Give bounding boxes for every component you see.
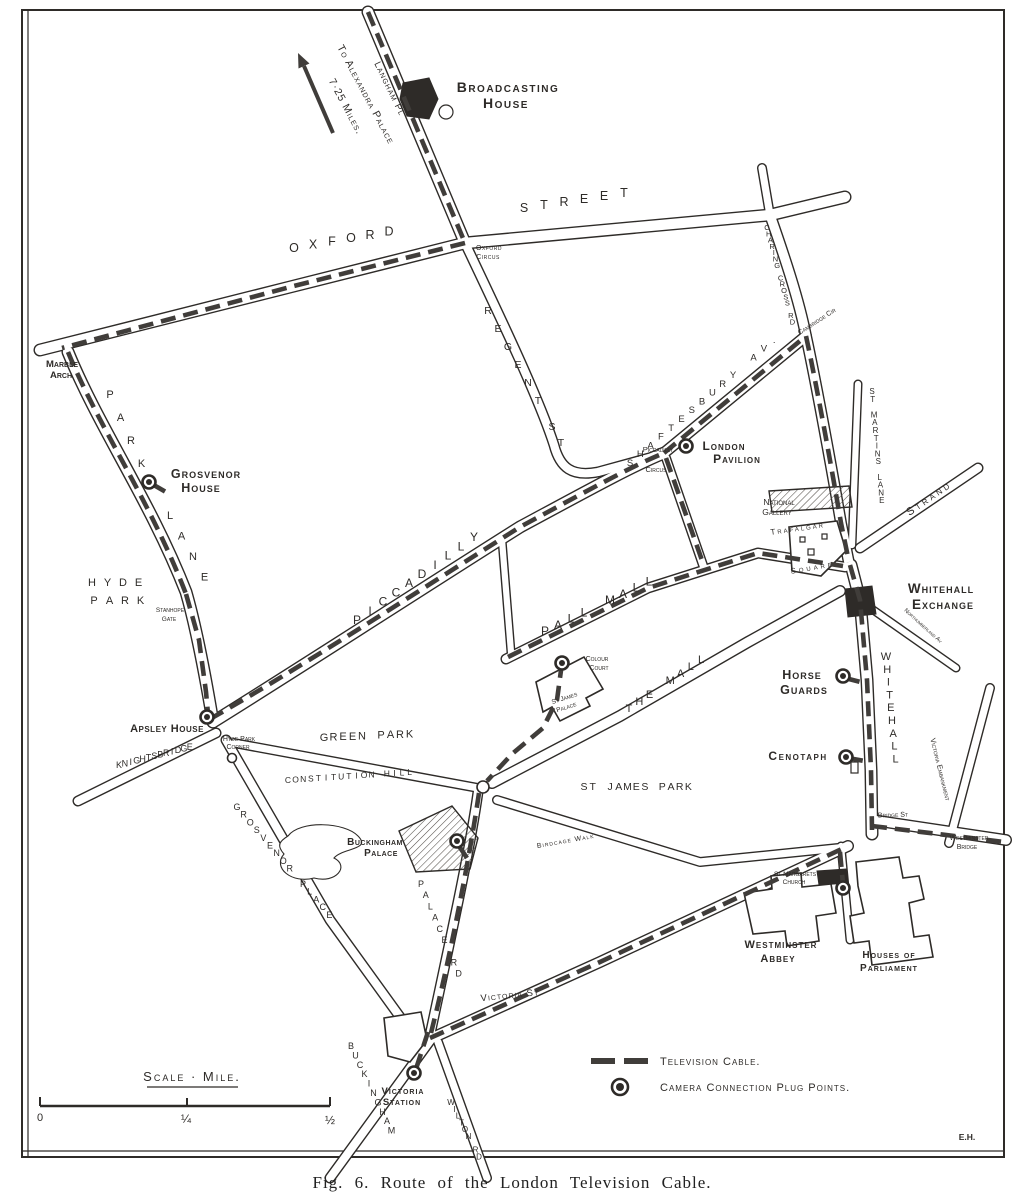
map-label-piccadilly-circus-2: Circus [646, 465, 668, 474]
map-label-st-margarets-1: St Margarets [774, 871, 817, 878]
map-label-oxford-street-street: T [620, 186, 628, 200]
map-label-stanhope-gate-2: Gate [162, 616, 177, 623]
map-label-regent-st-st: S [548, 421, 555, 433]
map-label-hyde-park-hyde: Y [104, 577, 112, 589]
legend-plug-sample-dot [616, 1083, 624, 1091]
map-label-palace-rd: A [423, 890, 429, 900]
map-label-green-park: G [320, 732, 329, 744]
map-label-grosvenor-place: O [247, 817, 254, 827]
map-label-regent-st-regent: T [535, 395, 542, 407]
map-label-charing-cross-rd: G [774, 261, 780, 270]
map-label-park-lane-park: P [106, 389, 113, 401]
map-label-piccadilly-street: L [458, 539, 465, 553]
map-label-shaftesbury-av: B [699, 396, 705, 407]
map-label-oxford-street-street: E [600, 189, 608, 203]
street [226, 740, 408, 1028]
map-label-oxford-street-street: E [580, 192, 588, 206]
map-label-palace-rd: E [441, 935, 447, 945]
map-label-the-mall: M [666, 675, 675, 687]
map-label-strand: Strand [904, 478, 954, 518]
map-label-st-james-park: E [633, 781, 640, 793]
map-label-st-james-park: K [685, 781, 692, 793]
map-label-park-lane-park: A [117, 412, 125, 424]
map-label-park-lane-lane: A [178, 531, 186, 543]
map-label-constitution-hill: S [308, 774, 314, 784]
map-label-charing-cross-rd: S [785, 299, 790, 308]
map-label-whitehall-street: A [890, 728, 898, 740]
map-label-st-james-park: T [589, 781, 596, 793]
scale-bar: Scale · Mile. 0 ¼ ½ [37, 1069, 335, 1127]
map-label-knightsbridge: I [130, 757, 133, 767]
map-label-constitution-hill: O [292, 775, 299, 785]
map-label-knightsbridge: I [171, 747, 174, 757]
map-label-stanhope-gate-1: Stanhope [156, 607, 185, 614]
map-label-oxford-street-oxford: F [328, 234, 336, 248]
map-label-hyde-park-corner-1: Hyde Park [223, 736, 256, 743]
map-label-st-james-park: J [607, 781, 612, 793]
map-label-piccadilly-street: I [433, 558, 436, 572]
map-label-st-margarets-2: Church [783, 879, 806, 886]
victoria-station-plug [408, 1067, 421, 1080]
map-label-marble-arch-2: Arch [50, 370, 72, 381]
map-label-st-martins-lane: E [879, 496, 884, 505]
map-label-green-park: E [349, 731, 356, 743]
map-label-buckingham-palace-2: Palace [364, 848, 398, 859]
map-label-grosvenor-place: A [313, 894, 319, 904]
map-label-houses-parliament-2: Parliament [860, 963, 918, 974]
map-label-shaftesbury-av: F [658, 432, 664, 443]
map-label-hyde-park-park: A [106, 595, 114, 607]
map-label-victoria-embankment: Victoria Embankment [928, 737, 952, 802]
map-label-oxford-street-oxford: O [346, 231, 356, 245]
scale-tick-half: ½ [325, 1113, 335, 1127]
map-label-green-park: A [387, 729, 395, 741]
st-margarets-plug [837, 882, 850, 895]
map-label-park-lane-park: R [127, 435, 135, 447]
map-label-westminster-bridge-1: Westminster [950, 835, 989, 842]
map-label-constitution-hill: T [331, 772, 336, 782]
map-label-westminster-bridge-2: Bridge [957, 844, 978, 851]
map-label-whitehall-street: L [891, 741, 897, 753]
colour-court-plug [556, 657, 569, 670]
map-label-the-mall: E [646, 689, 653, 701]
map-label-st-james-park: R [676, 781, 684, 793]
map-label-whitehall-street: L [893, 753, 899, 765]
buckingham-palace-plug [451, 835, 464, 848]
map-label-pall-mall: P [541, 624, 549, 638]
map-label-constitution-hill: L [400, 768, 405, 778]
horse-guards-plug [837, 670, 850, 683]
map-label-palace-rd: C [437, 924, 444, 934]
map-label-green-park: E [339, 731, 346, 743]
scale-tick-zero: 0 [37, 1112, 43, 1124]
map-label-st-james-park: S [580, 781, 587, 793]
map-label-knightsbridge: R [163, 748, 170, 758]
map-label-pall-mall: L [568, 612, 575, 626]
map-label-whitehall-exchange-2: Exchange [912, 597, 974, 612]
figure-page: To Alexandra Palace7·25 Miles.Langham Pl… [0, 0, 1024, 1204]
map-label-shaftesbury-av: S [627, 458, 633, 469]
map-label-broadcasting-house-1: Broadcasting [457, 79, 560, 95]
map-label-the-mall: T [626, 703, 633, 715]
map-label-shaftesbury-av: Y [730, 370, 737, 381]
map-label-shaftesbury-av: V [761, 344, 768, 355]
map-label-green-park: N [358, 730, 366, 742]
map-label-st-james-park: A [615, 781, 622, 793]
map-label-buckingham-palace-rd: K [361, 1069, 367, 1079]
map-label-grosvenor-house-1: Grosvenor [171, 467, 241, 481]
map-label-green-park: K [406, 728, 414, 740]
map-label-pall-mall: L [581, 605, 588, 619]
map-label-st-martins-lane: S [876, 457, 881, 466]
figure-caption: Fig. 6. Route of the London Television C… [312, 1173, 711, 1192]
map-label-park-lane-park: K [138, 458, 146, 470]
map-label-horse-guards-1: Horse [782, 668, 822, 682]
map-label-whitehall-exchange-1: Whitehall [908, 581, 974, 596]
map-label-london-pavilion-2: Pavilion [713, 452, 761, 466]
apsley-house-plug [201, 711, 214, 724]
map-label-apsley-house: Apsley House [130, 723, 204, 735]
map-label-hyde-park-hyde: H [88, 577, 96, 589]
legend-cable-label: Television Cable. [660, 1056, 760, 1068]
map-label-shaftesbury-av: S [689, 405, 695, 416]
map-label-st-james-park: M [623, 781, 632, 793]
map-label-constitution-hill: C [285, 775, 291, 785]
map-label-whitehall-street: H [883, 664, 891, 676]
street [234, 743, 478, 788]
map-label-whitehall-street: E [887, 702, 894, 714]
map-label-regent-st-regent: G [504, 341, 512, 353]
map-label-constitution-hill: N [300, 774, 306, 784]
map-label-constitution-hill: I [393, 768, 395, 778]
map-label-green-park: R [330, 732, 338, 744]
map-label-palace-rd: D [455, 969, 462, 979]
map-label-grosvenor-place: L [307, 887, 312, 897]
scale-tick-quarter: ¼ [181, 1112, 192, 1126]
street [78, 733, 216, 801]
map-label-palace-rd: R [451, 957, 458, 967]
map-label-piccadilly-street: C [392, 585, 401, 599]
map-label-piccadilly-street: C [379, 595, 388, 609]
map-label-pall-mall: A [619, 587, 627, 601]
grosvenor-house-plug [143, 476, 156, 489]
map-label-oxford-street-street: S [520, 201, 528, 215]
map-label-cenotaph: Cenotaph [768, 749, 827, 763]
map-label-grosvenor-house-2: House [181, 481, 221, 495]
street [762, 168, 770, 215]
map-label-palace-rd: L [428, 901, 433, 911]
map-label-piccadilly-street: A [405, 576, 413, 590]
map-label-horse-guards-2: Guards [780, 683, 828, 697]
map-label-westminster-abbey-2: Abbey [760, 953, 795, 965]
map-label-the-mall: L [688, 661, 694, 673]
map-label-houses-parliament-1: Houses of [862, 950, 915, 961]
map-label-shaftesbury-av: U [709, 388, 716, 399]
houses-of-parliament-building [850, 857, 933, 965]
map-legend: Television Cable. Camera Connection Plug… [591, 1056, 850, 1095]
map-label-broadcasting-house-2: House [483, 95, 529, 111]
map-label-victoria-station-1: Victoria [382, 1086, 425, 1097]
map-label-piccadilly-street: I [368, 604, 371, 618]
map-label-whitehall-street: T [886, 689, 893, 701]
map-label-buckingham-palace-rd: M [388, 1126, 396, 1136]
victoria-memorial [477, 781, 489, 793]
map-label-oxford-circus-1: Oxford [476, 245, 502, 252]
map-label-grosvenor-place: R [287, 864, 294, 874]
map-label-piccadilly-street: D [418, 567, 427, 581]
map-label-knightsbridge: N [122, 759, 129, 769]
alexandra-palace-arrow [298, 53, 333, 133]
map-label-park-lane-lane: L [167, 510, 173, 522]
map-label-grosvenor-place: E [326, 910, 332, 920]
map-label-shaftesbury-av: . [773, 335, 776, 346]
map-label-wilton-rd: N [466, 1132, 472, 1141]
map-label-knightsbridge: E [187, 742, 193, 752]
map-label-st-james-park: P [659, 781, 666, 793]
map-label-national-gallery-1: National [763, 497, 795, 507]
cenotaph-plug [840, 751, 853, 764]
map-label-constitution-hill: L [407, 767, 412, 777]
london-pavilion-plug [680, 440, 693, 453]
map-label-buckingham-palace-1: Buckingham [347, 837, 403, 848]
street [497, 800, 848, 862]
map-label-whitehall-street: W [881, 651, 892, 663]
map-label-constitution-hill: I [325, 773, 327, 783]
map-label-constitution-hill: N [369, 770, 375, 780]
map-label-grosvenor-place: P [300, 879, 306, 889]
map-label-piccadilly-street: L [445, 549, 452, 563]
map-label-st-james-park: A [667, 781, 674, 793]
map-label-piccadilly-circus-1: Piccadilly [643, 445, 674, 454]
map-label-st-james-park: S [641, 781, 648, 793]
map-label-hyde-park-hyde: E [135, 577, 142, 589]
map-label-london-pavilion-1: London [702, 439, 745, 453]
map-label-whitehall-street: I [887, 677, 890, 689]
map-label-hyde-park-hyde: D [119, 577, 127, 589]
map-label-victoria-station-2: Station [383, 1097, 421, 1108]
map-label-constitution-hill: H [384, 769, 390, 779]
map-label-constitution-hill: I [355, 771, 357, 781]
map-label-park-lane-lane: E [201, 572, 208, 584]
all-souls-church [439, 105, 453, 119]
map-label-the-mall: A [677, 668, 685, 680]
map-label-palace-rd: A [432, 913, 438, 923]
map-label-park-lane-lane: N [189, 551, 197, 563]
map-label-regent-st-regent: E [514, 359, 521, 371]
map-label-constitution-hill: T [346, 771, 351, 781]
map-label-st-martins-lane: T [870, 395, 875, 404]
map-label-constitution-hill: O [361, 770, 368, 780]
legend-plug-label: Camera Connection Plug Points. [660, 1082, 850, 1094]
map-label-the-mall: L [698, 654, 704, 666]
cenotaph-monument [851, 762, 858, 773]
map-label-constitution-hill: U [338, 772, 344, 782]
map-label-hyde-park-park: K [137, 595, 145, 607]
map-label-oxford-circus-2: Circus [476, 254, 500, 261]
scale-title: Scale · Mile. [143, 1069, 241, 1084]
map-label-hyde-park-corner-2: Corner [226, 744, 250, 751]
map-label-pall-mall: A [554, 618, 562, 632]
map-label-shaftesbury-av: A [750, 352, 757, 363]
map-label-oxford-street-oxford: R [365, 228, 374, 242]
map-label-oxford-street-oxford: O [289, 241, 299, 255]
map-label-green-park: R [396, 729, 404, 741]
map-label-regent-st-regent: E [494, 323, 501, 335]
street [68, 352, 213, 722]
map-label-piccadilly-street: Y [470, 530, 478, 544]
map-label-birdcage-walk: Birdcage Walk [536, 833, 595, 850]
map-label-westminster-abbey-1: Westminster [745, 939, 818, 951]
map-label-hyde-park-park: R [121, 595, 129, 607]
map-label-bridge-st: Bridge St [878, 811, 908, 819]
map-label-pall-mall: L [633, 581, 640, 595]
map-label-marble-arch-1: Marble [46, 359, 78, 370]
map-label-oxford-street-street: T [540, 198, 548, 212]
map-label-regent-st-regent: R [484, 305, 492, 317]
map-label-green-park: P [377, 730, 384, 742]
wellington-arch [228, 754, 237, 763]
map-label-colour-court-2: Court [589, 665, 608, 672]
map-label-charing-cross-rd: D [790, 318, 796, 327]
map-label-whitehall-street: H [888, 715, 896, 727]
map-label-hyde-park-park: P [90, 595, 97, 607]
map-label-grosvenor-place: E [267, 841, 273, 851]
map-label-shaftesbury-av: R [719, 379, 726, 390]
london-cable-map: To Alexandra Palace7·25 Miles.Langham Pl… [0, 0, 1024, 1204]
map-label-colour-court-1: Colour [586, 656, 609, 663]
map-label-pall-mall: L [646, 574, 653, 588]
street [949, 688, 990, 843]
map-label-palace-rd: P [418, 879, 424, 889]
map-label-piccadilly-street: P [353, 613, 361, 627]
map-label-oxford-street-oxford: D [384, 225, 393, 239]
map-label-the-mall: H [635, 696, 643, 708]
buildings-layer [228, 78, 934, 1062]
map-label-regent-st-st: T [558, 437, 565, 449]
map-label-shaftesbury-av: T [668, 423, 674, 434]
map-label-oxford-street-street: R [559, 195, 568, 209]
map-label-grosvenor-place: V [260, 833, 266, 843]
map-label-constitution-hill: T [316, 773, 321, 783]
map-label-regent-st-regent: N [524, 377, 532, 389]
map-label-shaftesbury-av: E [678, 414, 684, 425]
map-label-pall-mall: M [605, 593, 615, 607]
map-label-wilton-rd: D [476, 1152, 482, 1161]
map-label-grosvenor-place: S [254, 825, 260, 835]
map-label-artist-initials: E.H. [959, 1132, 976, 1142]
map-label-national-gallery-2: Gallery [762, 507, 792, 517]
map-label-oxford-street-oxford: X [309, 238, 318, 252]
